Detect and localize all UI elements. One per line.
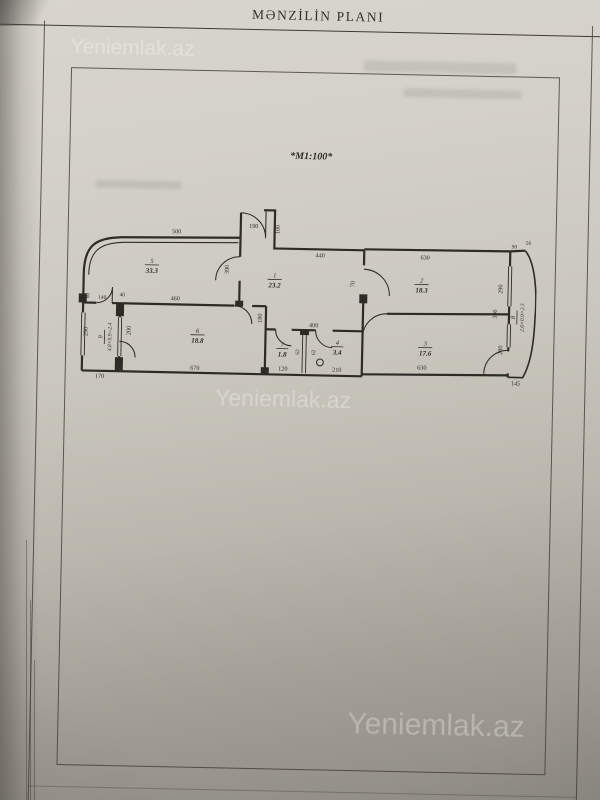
dim-room3-bottom: 630	[417, 364, 426, 371]
svg-text:4: 4	[336, 340, 340, 347]
svg-text:2.6×0.9=2.3: 2.6×0.9=2.3	[520, 303, 527, 332]
svg-text:18.3: 18.3	[415, 286, 428, 294]
dim-gap-a: 62	[295, 349, 301, 355]
dim-hall-top: 440	[315, 252, 324, 259]
dim-left-wall: 290	[82, 327, 89, 336]
svg-text:6: 6	[196, 328, 200, 335]
dim-gap-b: 62	[311, 349, 317, 355]
dim-bath-bottom: 210	[332, 367, 341, 374]
svg-text:3.4: 3.4	[332, 349, 342, 357]
room-label-9: 9 4.8×0.9=2.4	[97, 322, 114, 351]
dim-balcony-top2: 56	[526, 241, 532, 247]
floor-plan-drawing: *M1:100*	[74, 135, 539, 397]
svg-text:4.8×0.9=2.4: 4.8×0.9=2.4	[107, 323, 114, 352]
room-label-5: 5 33.3	[145, 258, 159, 275]
watermark-top: Yeniemlak.az	[70, 35, 195, 62]
dim-room5-top: 500	[172, 228, 181, 235]
toilet-fixture	[316, 359, 323, 366]
room-label-6: 6 18.8	[190, 328, 204, 345]
dim-room6-bottom: 670	[190, 365, 199, 372]
corner-shadow	[0, 0, 70, 26]
ink-bleed-through	[364, 60, 516, 74]
svg-text:1.8: 1.8	[278, 351, 287, 359]
dim-entry-door: 190	[249, 223, 258, 230]
dim-room3-right: 280	[497, 345, 504, 354]
dim-room5-bottom: 460	[171, 295, 180, 302]
outer-frame-bottom	[28, 785, 576, 797]
room-label-2: 2 18.3	[414, 277, 428, 294]
page-stack-line	[34, 660, 35, 800]
watermark-bottom: Yeniemlak.az	[347, 707, 525, 745]
dim-room6-column: 200	[125, 326, 132, 335]
dim-wc-bottom: 120	[278, 366, 287, 373]
dim-hall-room2-door: 70	[350, 281, 357, 287]
room-label-8: 8 2.6×0.9=2.3	[510, 303, 527, 332]
dim-balcony-top: 90	[512, 244, 518, 250]
svg-text:9: 9	[97, 334, 104, 338]
room-label-1: 1 23.2	[267, 272, 281, 289]
dim-left-bottom: 170	[95, 373, 104, 380]
outer-frame-right	[576, 26, 594, 800]
dim-left-top: 60	[85, 292, 91, 298]
photographed-floor-plan-page: MƏNZİLİN PLANI Yeniemlak.az Yeniemlak.az…	[0, 0, 600, 800]
door-arcs	[95, 208, 511, 375]
dim-balcony-bottom: 145	[511, 380, 520, 387]
dim-balcony-side: 390	[492, 309, 499, 318]
dim-hall-side: 180	[257, 313, 264, 322]
dim-room2-top: 630	[420, 255, 429, 262]
svg-text:1: 1	[273, 272, 276, 279]
walls	[82, 206, 538, 379]
svg-text:18.8: 18.8	[191, 337, 204, 345]
dim-door-140: 140	[98, 295, 107, 301]
svg-text:7: 7	[281, 342, 285, 349]
scale-note: *M1:100*	[290, 151, 333, 163]
svg-text:2: 2	[420, 277, 424, 284]
svg-text:5: 5	[150, 258, 153, 265]
windows	[81, 257, 512, 377]
page-stack-line	[30, 600, 31, 800]
dim-room5-right: 390	[224, 265, 231, 274]
page-stack-line	[26, 540, 27, 800]
svg-text:23.2: 23.2	[267, 281, 281, 289]
document-sheet: MƏNZİLİN PLANI Yeniemlak.az Yeniemlak.az…	[0, 0, 600, 800]
dim-room2-right: 290	[497, 284, 504, 293]
svg-text:8: 8	[510, 315, 517, 319]
room-label-4: 4 3.4	[331, 340, 343, 357]
wall-piers	[77, 288, 367, 376]
svg-text:33.3: 33.3	[145, 267, 159, 275]
svg-text:3: 3	[423, 341, 427, 348]
dim-wc-top: 400	[309, 322, 318, 329]
svg-text:17.6: 17.6	[419, 349, 432, 357]
room-label-7: 7 1.8	[276, 342, 288, 359]
room-label-3: 3 17.6	[418, 340, 432, 357]
dim-door-40: 40	[120, 292, 126, 298]
dim-entry-side: 100	[275, 225, 282, 234]
